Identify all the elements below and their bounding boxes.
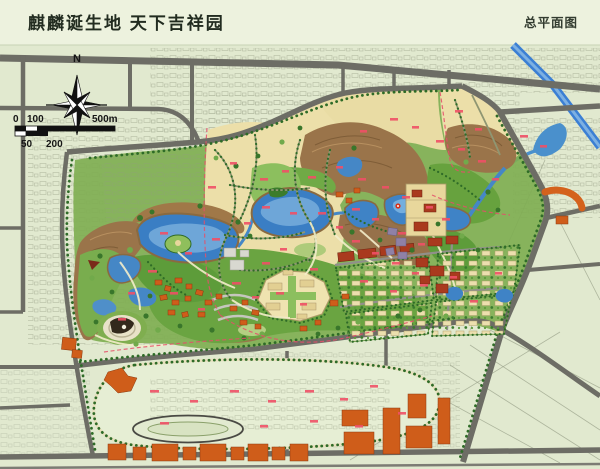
- temple-complex: [406, 184, 446, 236]
- scale-tick-500: 500m: [92, 114, 118, 125]
- scale-tick-50: 50: [21, 139, 33, 150]
- scale-tick-100: 100: [27, 114, 44, 125]
- scale-tick-200: 200: [46, 139, 63, 150]
- master-plan-page: 麒麟诞生地 天下吉祥园 总平面图: [0, 0, 600, 469]
- scale-tick-0: 0: [13, 114, 19, 125]
- master-plan-map: N 0 100 500m 50 200: [0, 0, 600, 469]
- campus: [94, 359, 450, 461]
- north-label: N: [73, 53, 81, 65]
